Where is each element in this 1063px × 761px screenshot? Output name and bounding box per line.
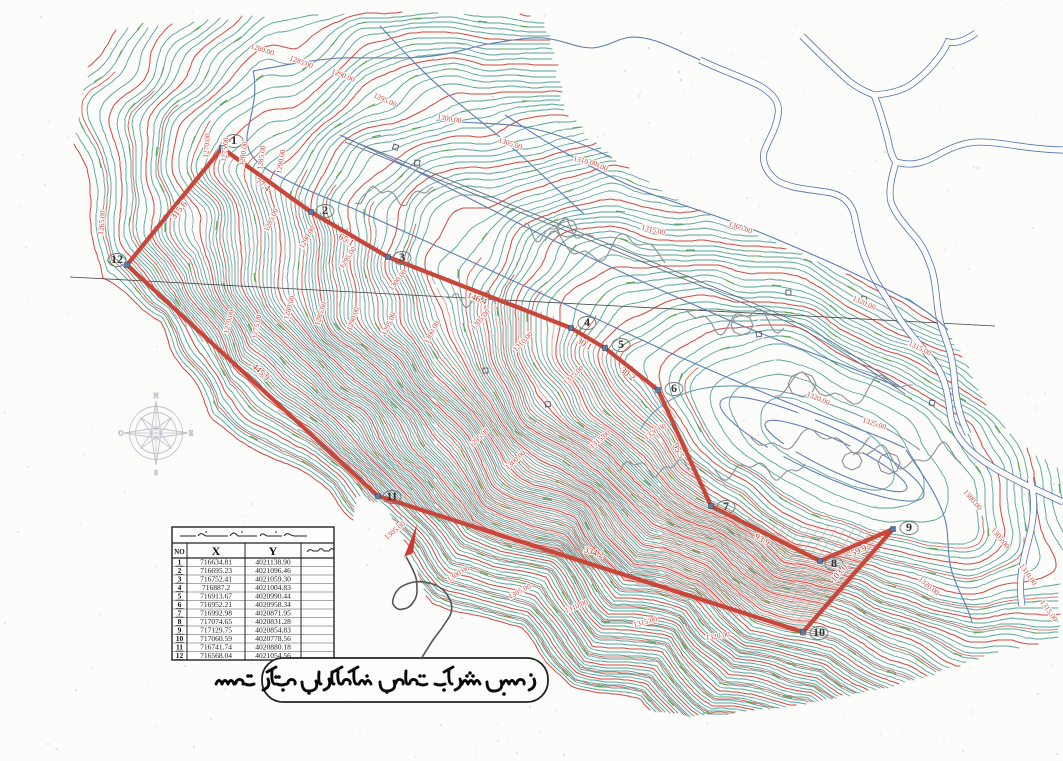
svg-text:5: 5	[618, 337, 624, 351]
svg-text:1275.00: 1275.00	[249, 313, 263, 339]
svg-text:1295.00: 1295.00	[372, 91, 398, 109]
svg-text:2: 2	[322, 203, 328, 217]
svg-text:O: O	[118, 430, 123, 438]
svg-text:1305.00: 1305.00	[727, 219, 753, 235]
svg-text:1: 1	[231, 133, 237, 147]
svg-text:10: 10	[813, 625, 825, 639]
svg-text:1285.00: 1285.00	[288, 53, 314, 70]
svg-text:1270.00: 1270.00	[221, 308, 236, 334]
svg-text:1315.00: 1315.00	[640, 222, 666, 237]
svg-text:NO: NO	[174, 548, 185, 556]
svg-text:1325.00: 1325.00	[861, 415, 887, 431]
svg-text:716568.04: 716568.04	[200, 651, 232, 660]
svg-text:1320.00: 1320.00	[642, 421, 668, 442]
svg-text:9: 9	[906, 520, 912, 534]
svg-text:N: N	[153, 392, 158, 400]
svg-text:1290.00: 1290.00	[274, 149, 287, 175]
svg-text:4: 4	[584, 315, 590, 329]
svg-text:E: E	[189, 430, 193, 438]
svg-text:11: 11	[386, 489, 397, 503]
svg-text:1280.00: 1280.00	[281, 294, 296, 320]
svg-text:1295.00: 1295.00	[380, 311, 398, 337]
svg-text:1315.00: 1315.00	[1038, 598, 1059, 623]
svg-text:3: 3	[399, 250, 405, 264]
svg-text:12: 12	[111, 252, 123, 266]
svg-text:1315.00: 1315.00	[632, 614, 658, 629]
svg-text:1300.00: 1300.00	[437, 112, 463, 125]
svg-text:1280.00: 1280.00	[237, 141, 249, 167]
svg-text:65.1: 65.1	[337, 231, 356, 248]
svg-text:12: 12	[176, 651, 184, 660]
svg-text:1310.00: 1310.00	[573, 154, 599, 168]
svg-text:1285.00: 1285.00	[312, 300, 328, 326]
svg-text:7: 7	[723, 499, 729, 513]
svg-text:6: 6	[671, 381, 677, 395]
svg-text:1285.00: 1285.00	[255, 145, 267, 171]
svg-text:1275.00: 1275.00	[219, 137, 231, 162]
svg-text:S: S	[154, 469, 158, 477]
svg-text:Y: Y	[269, 544, 278, 558]
svg-text:1305.00: 1305.00	[497, 135, 523, 151]
svg-text:1310.00: 1310.00	[511, 329, 535, 353]
svg-text:1300.00: 1300.00	[961, 488, 984, 513]
svg-text:1270.00: 1270.00	[201, 133, 212, 158]
svg-text:X: X	[212, 544, 221, 558]
